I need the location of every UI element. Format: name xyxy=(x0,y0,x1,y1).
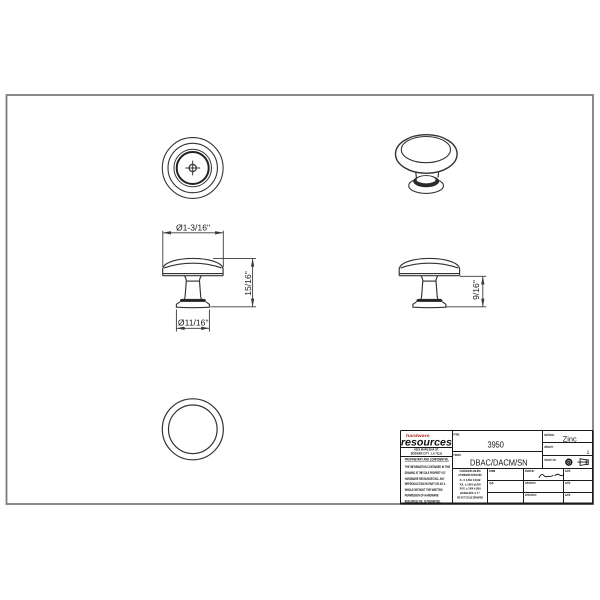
svg-text:1: 1 xyxy=(586,449,589,455)
svg-text:DATE: DATE xyxy=(565,470,570,473)
svg-text:WEIGHT:: WEIGHT: xyxy=(544,446,553,449)
svg-text:resources: resources xyxy=(401,437,452,448)
svg-text:XXX. ± 1/64 ±1/64: XXX. ± 1/64 ±1/64 xyxy=(459,487,480,490)
svg-text:PROPRIETARY AND CONFIDENTIAL: PROPRIETARY AND CONFIDENTIAL xyxy=(405,457,449,461)
svg-text:TOLERANCES UNLESS: TOLERANCES UNLESS xyxy=(459,469,480,472)
svg-text:OTHERWISE SPECIFIED: OTHERWISE SPECIFIED xyxy=(458,474,481,477)
svg-text:DATE: DATE xyxy=(565,493,570,496)
svg-text:DRAWING IS THE SOLE PROPERTY O: DRAWING IS THE SOLE PROPERTY OF xyxy=(405,471,446,475)
svg-text:HARDWARE RESOURCES INC. ANY: HARDWARE RESOURCES INC. ANY xyxy=(405,477,445,481)
svg-text:9/16": 9/16" xyxy=(471,280,481,300)
svg-text:QA.: QA. xyxy=(489,481,494,484)
svg-text:FINISH:: FINISH: xyxy=(454,454,462,457)
svg-text:Ø1-3/16": Ø1-3/16" xyxy=(176,222,210,232)
svg-text:RESOURCES INC. IS PROHIBITED.: RESOURCES INC. IS PROHIBITED. xyxy=(405,499,441,503)
svg-text:DATE: DATE xyxy=(565,481,570,484)
svg-text:XX. ± 1/64 ±1/64: XX. ± 1/64 ±1/64 xyxy=(459,483,480,486)
svg-text:APPROVED BY: APPROVED BY xyxy=(525,493,537,496)
svg-text:Ø11/16": Ø11/16" xyxy=(178,318,209,328)
svg-text:DO NOT SCALE DRAWING: DO NOT SCALE DRAWING xyxy=(457,496,483,499)
svg-text:3950: 3950 xyxy=(487,440,504,450)
svg-text:WHOLE WITHOUT THE WRITTEN: WHOLE WITHOUT THE WRITTEN xyxy=(405,488,443,492)
svg-text:REPRODUCTION IN PART OR AS A: REPRODUCTION IN PART OR AS A xyxy=(405,482,446,486)
svg-text:DIM: DIM xyxy=(489,470,495,473)
svg-text:DBAC/DACM/SN: DBAC/DACM/SN xyxy=(470,458,528,468)
svg-text:Zinc: Zinc xyxy=(563,434,577,443)
svg-text:X. ± 1/64 ±1/32: X. ± 1/64 ±1/32 xyxy=(459,478,480,481)
svg-text:ANGLES ± 1°: ANGLES ± 1° xyxy=(460,491,480,494)
svg-text:THE INFORMATION CONTAINED IN T: THE INFORMATION CONTAINED IN THIS xyxy=(405,465,451,469)
svg-text:DRAWN BY: DRAWN BY xyxy=(525,470,535,473)
svg-text:4319 MARLENA ST.: 4319 MARLENA ST. xyxy=(414,447,439,451)
svg-text:PERMISSION OF HARDWARE: PERMISSION OF HARDWARE xyxy=(405,493,439,497)
svg-text:PROJECT NO:: PROJECT NO: xyxy=(544,458,556,461)
svg-text:MATERIAL:: MATERIAL: xyxy=(544,433,555,436)
svg-text:CHECKED BY:: CHECKED BY: xyxy=(525,481,536,484)
svg-text:BOSSIER CITY , LA 71111: BOSSIER CITY , LA 71111 xyxy=(411,452,443,456)
svg-text:ITEM:: ITEM: xyxy=(454,433,460,436)
svg-text:15/16": 15/16" xyxy=(243,271,253,296)
